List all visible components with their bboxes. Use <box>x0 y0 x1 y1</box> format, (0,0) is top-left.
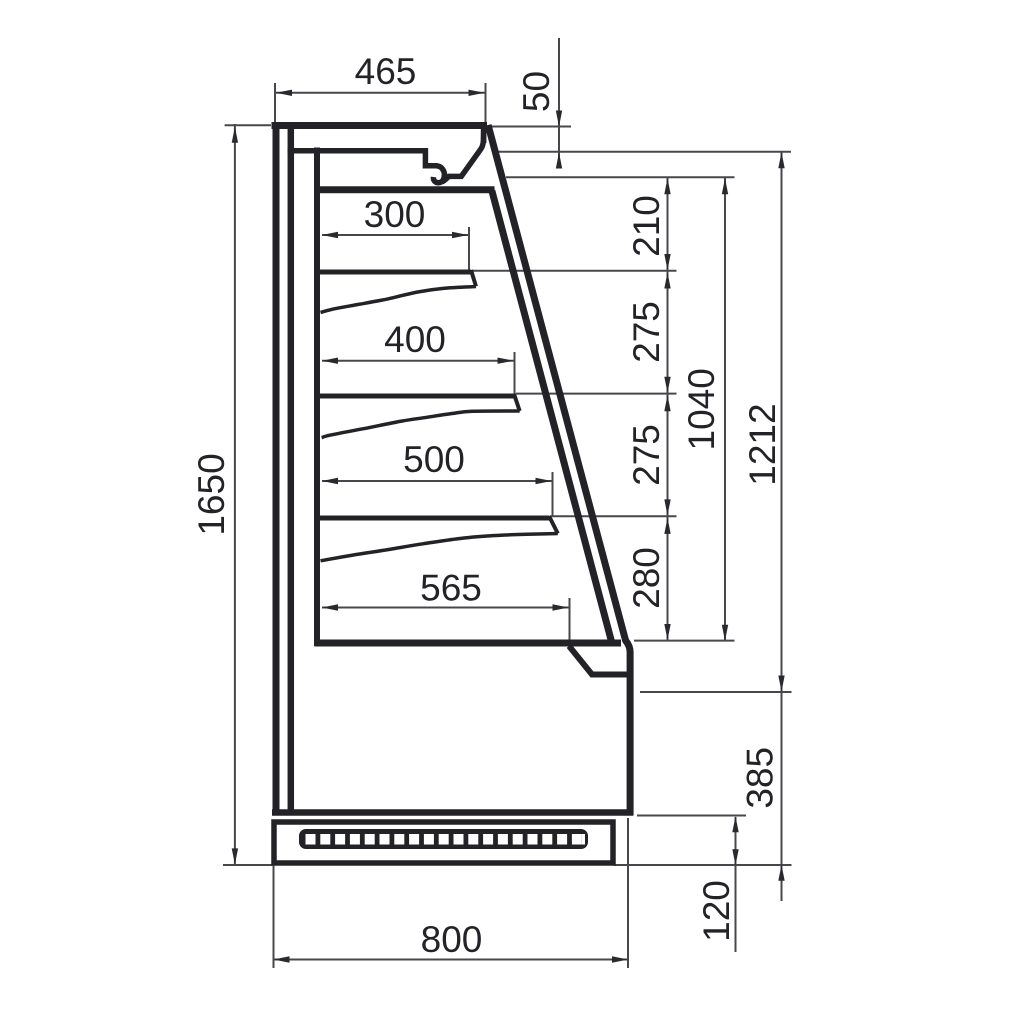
svg-text:565: 565 <box>420 568 482 609</box>
svg-text:385: 385 <box>739 747 780 809</box>
svg-text:1040: 1040 <box>681 368 722 450</box>
svg-text:1212: 1212 <box>742 403 783 485</box>
svg-text:400: 400 <box>384 319 446 360</box>
svg-text:120: 120 <box>696 880 737 942</box>
svg-text:275: 275 <box>626 424 667 486</box>
svg-text:280: 280 <box>626 547 667 609</box>
svg-text:800: 800 <box>421 919 483 960</box>
svg-text:210: 210 <box>626 195 667 257</box>
svg-text:500: 500 <box>403 439 465 480</box>
svg-text:1650: 1650 <box>191 453 232 535</box>
svg-text:275: 275 <box>626 301 667 363</box>
svg-text:465: 465 <box>355 51 417 92</box>
svg-text:300: 300 <box>364 194 426 235</box>
svg-text:50: 50 <box>516 71 557 112</box>
